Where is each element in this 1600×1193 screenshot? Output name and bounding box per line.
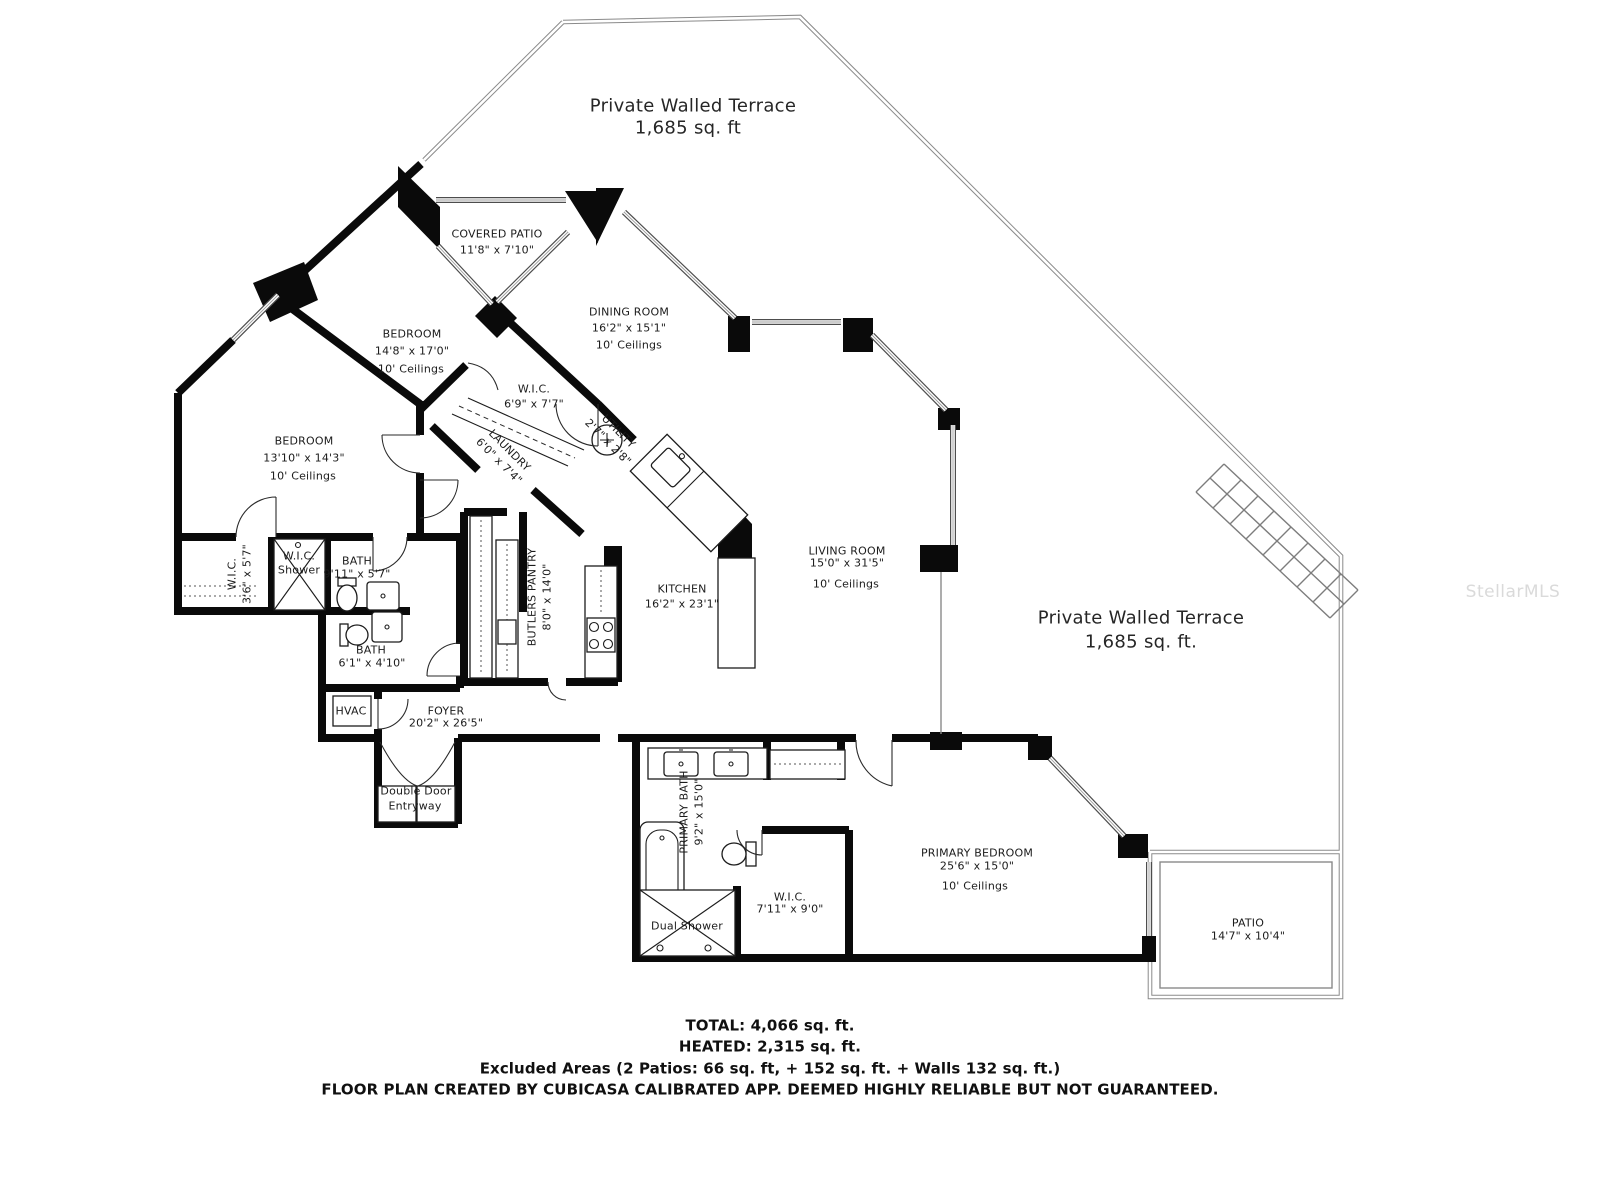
wic-shower-line2: Shower xyxy=(278,564,320,577)
dining-ceilings: 10' Ceilings xyxy=(596,339,662,352)
terrace-top-area: 1,685 sq. ft xyxy=(635,118,741,139)
entry-line2: Entryway xyxy=(388,800,441,813)
covered-patio-dims: 11'8" x 7'10" xyxy=(460,244,534,257)
primary-bedroom-name: PRIMARY BEDROOM xyxy=(921,847,1033,860)
toilet xyxy=(722,842,756,866)
wic-shower-line1: W.I.C. xyxy=(283,550,315,563)
window-living-diagonal xyxy=(872,335,946,410)
sink xyxy=(372,612,402,642)
hvac-name: HVAC xyxy=(336,705,367,718)
toilet xyxy=(337,578,357,611)
total-area: TOTAL: 4,066 sq. ft. xyxy=(321,1015,1218,1036)
terrace-right-area: 1,685 sq. ft. xyxy=(1085,632,1197,653)
primary-bedroom-ceilings: 10' Ceilings xyxy=(942,880,1008,893)
patio-dims: 14'7" x 10'4" xyxy=(1211,930,1285,943)
dining-dims: 16'2" x 15'1" xyxy=(592,322,666,335)
bath1-dims: 9'11" x 5'7" xyxy=(323,568,390,581)
bedroom1-dims: 14'8" x 17'0" xyxy=(375,345,449,358)
dining-name: DINING ROOM xyxy=(589,306,669,319)
bedroom2-dims: 13'10" x 14'3" xyxy=(263,452,344,465)
dual-shower-label: Dual Shower xyxy=(651,920,723,933)
entry-line1: Double Door xyxy=(380,785,451,798)
living-dims: 15'0" x 31'5" xyxy=(810,557,884,570)
bath2-dims: 6'1" x 4'10" xyxy=(338,657,405,670)
butlers-pantry-label: BUTLERS PANTRY 8'0" x 14'0" xyxy=(525,548,556,646)
floor-plan: Private Walled Terrace 1,685 sq. ft Priv… xyxy=(0,0,1600,1193)
closet xyxy=(770,750,845,779)
sink xyxy=(714,752,748,776)
covered-patio-name: COVERED PATIO xyxy=(451,228,542,241)
wic-hall-name: W.I.C. xyxy=(518,383,550,396)
excluded-areas: Excluded Areas (2 Patios: 66 sq. ft, + 1… xyxy=(321,1058,1218,1079)
foyer-dims: 20'2" x 26'5" xyxy=(409,717,483,730)
kitchen-name: KITCHEN xyxy=(657,583,706,596)
terrace-top-label: Private Walled Terrace xyxy=(590,96,796,117)
kitchen-counter xyxy=(718,558,755,668)
heated-area: HEATED: 2,315 sq. ft. xyxy=(321,1037,1218,1058)
stove xyxy=(587,618,615,652)
primary-bath-label: PRIMARY BATH 9'2" x 15'0" xyxy=(677,770,708,853)
plan-summary: TOTAL: 4,066 sq. ft. HEATED: 2,315 sq. f… xyxy=(321,1015,1218,1100)
wic-primary-dims: 7'11" x 9'0" xyxy=(756,903,823,916)
disclaimer: FLOOR PLAN CREATED BY CUBICASA CALIBRATE… xyxy=(321,1079,1218,1100)
sink xyxy=(367,582,399,610)
bath1-name: BATH xyxy=(342,555,372,568)
primary-bedroom-dims: 25'6" x 15'0" xyxy=(940,860,1014,873)
terrace-outline xyxy=(424,17,1341,997)
bedroom2-name: BEDROOM xyxy=(275,435,334,448)
bath2-name: BATH xyxy=(356,644,386,657)
wic-left-label: W.I.C. 3'6" x 5'7" xyxy=(225,544,256,604)
living-ceilings: 10' Ceilings xyxy=(813,578,879,591)
window-dining-diagonal-left xyxy=(624,212,735,318)
window-primary-bedroom-diagonal xyxy=(1050,758,1124,836)
bedroom1-name: BEDROOM xyxy=(383,328,442,341)
bedroom1-ceilings: 10' Ceilings xyxy=(378,363,444,376)
terrace-right-label: Private Walled Terrace xyxy=(1038,608,1244,629)
patio-name: PATIO xyxy=(1232,917,1264,930)
stellar-mls-watermark: StellarMLS xyxy=(1466,582,1561,602)
sink xyxy=(498,620,516,644)
bedroom2-ceilings: 10' Ceilings xyxy=(270,470,336,483)
kitchen-dims: 16'2" x 23'1" xyxy=(645,598,719,611)
stairs-grid xyxy=(1196,464,1358,618)
wic-hall-dims: 6'9" x 7'7" xyxy=(504,398,564,411)
